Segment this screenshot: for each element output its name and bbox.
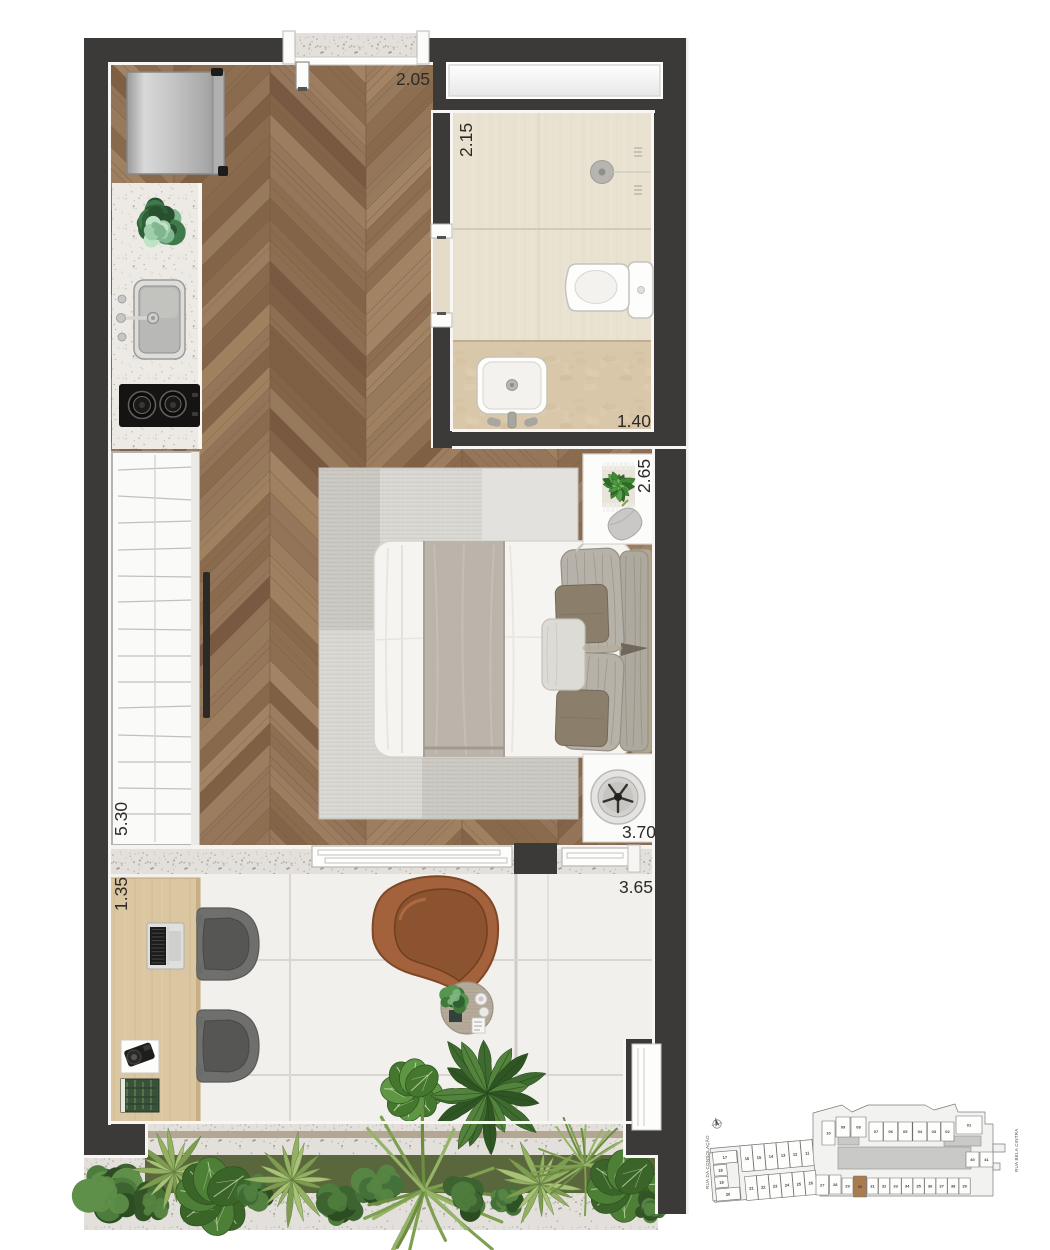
svg-text:33: 33 bbox=[893, 1184, 898, 1189]
svg-text:1.40: 1.40 bbox=[617, 411, 651, 431]
svg-text:2.05: 2.05 bbox=[396, 69, 430, 89]
svg-text:39: 39 bbox=[962, 1184, 967, 1189]
svg-text:05: 05 bbox=[903, 1129, 908, 1134]
svg-text:34: 34 bbox=[905, 1184, 910, 1189]
svg-text:3.65: 3.65 bbox=[619, 877, 653, 897]
svg-text:40: 40 bbox=[970, 1157, 975, 1162]
svg-text:09: 09 bbox=[841, 1125, 846, 1130]
svg-text:3.70: 3.70 bbox=[622, 822, 656, 842]
svg-text:01: 01 bbox=[967, 1123, 972, 1128]
svg-text:1.35: 1.35 bbox=[111, 877, 131, 911]
svg-text:31: 31 bbox=[870, 1184, 875, 1189]
svg-text:36: 36 bbox=[928, 1184, 933, 1189]
svg-text:29: 29 bbox=[845, 1184, 850, 1189]
svg-text:06: 06 bbox=[888, 1129, 893, 1134]
svg-text:2.65: 2.65 bbox=[634, 459, 654, 493]
svg-text:RUA BELA CINTRA: RUA BELA CINTRA bbox=[1014, 1128, 1019, 1172]
svg-text:28: 28 bbox=[833, 1182, 838, 1187]
svg-text:03: 03 bbox=[932, 1129, 937, 1134]
svg-text:38: 38 bbox=[951, 1184, 956, 1189]
svg-text:30: 30 bbox=[858, 1184, 863, 1189]
svg-text:41: 41 bbox=[984, 1157, 989, 1162]
svg-text:2.15: 2.15 bbox=[456, 123, 476, 157]
svg-text:04: 04 bbox=[918, 1129, 923, 1134]
svg-text:02: 02 bbox=[945, 1129, 950, 1134]
svg-text:RUA DA CONSOLAÇÃO: RUA DA CONSOLAÇÃO bbox=[704, 1135, 710, 1189]
svg-text:27: 27 bbox=[820, 1183, 825, 1188]
svg-text:35: 35 bbox=[916, 1184, 921, 1189]
svg-text:32: 32 bbox=[882, 1184, 887, 1189]
svg-text:10: 10 bbox=[826, 1131, 831, 1136]
svg-text:5.30: 5.30 bbox=[111, 802, 131, 836]
svg-text:37: 37 bbox=[939, 1184, 944, 1189]
svg-text:07: 07 bbox=[874, 1129, 879, 1134]
svg-text:08: 08 bbox=[856, 1125, 861, 1130]
